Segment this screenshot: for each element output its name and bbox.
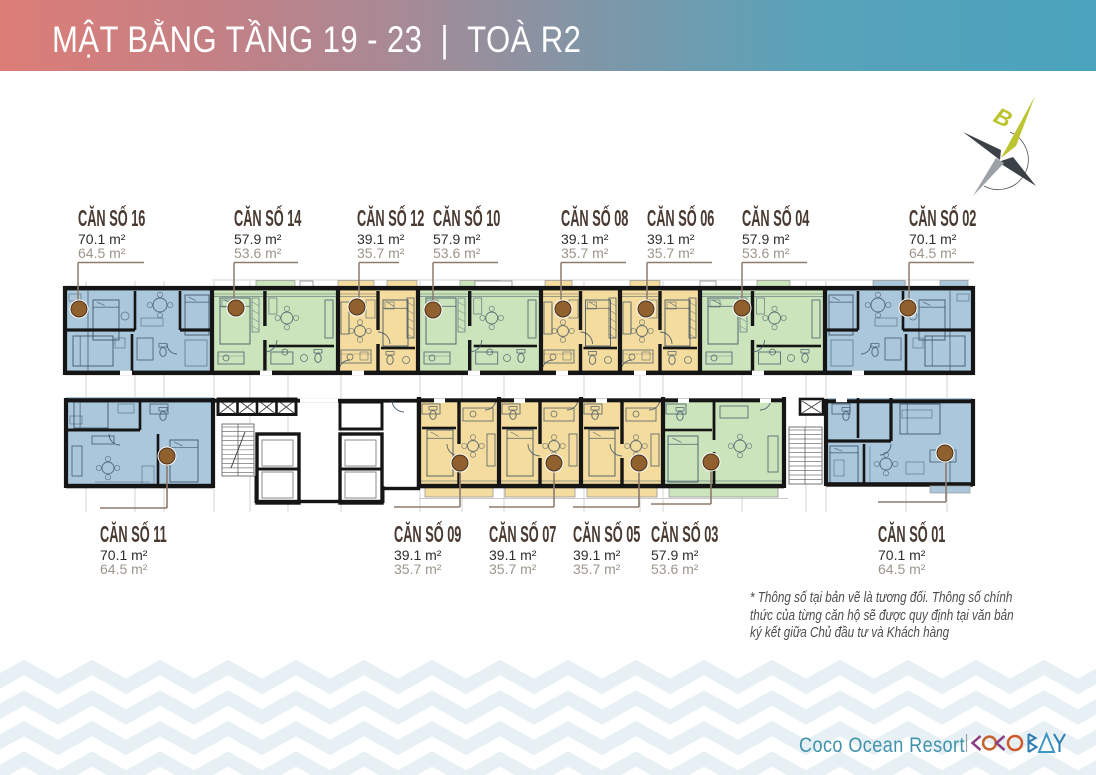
svg-text:B: B bbox=[990, 102, 1016, 133]
